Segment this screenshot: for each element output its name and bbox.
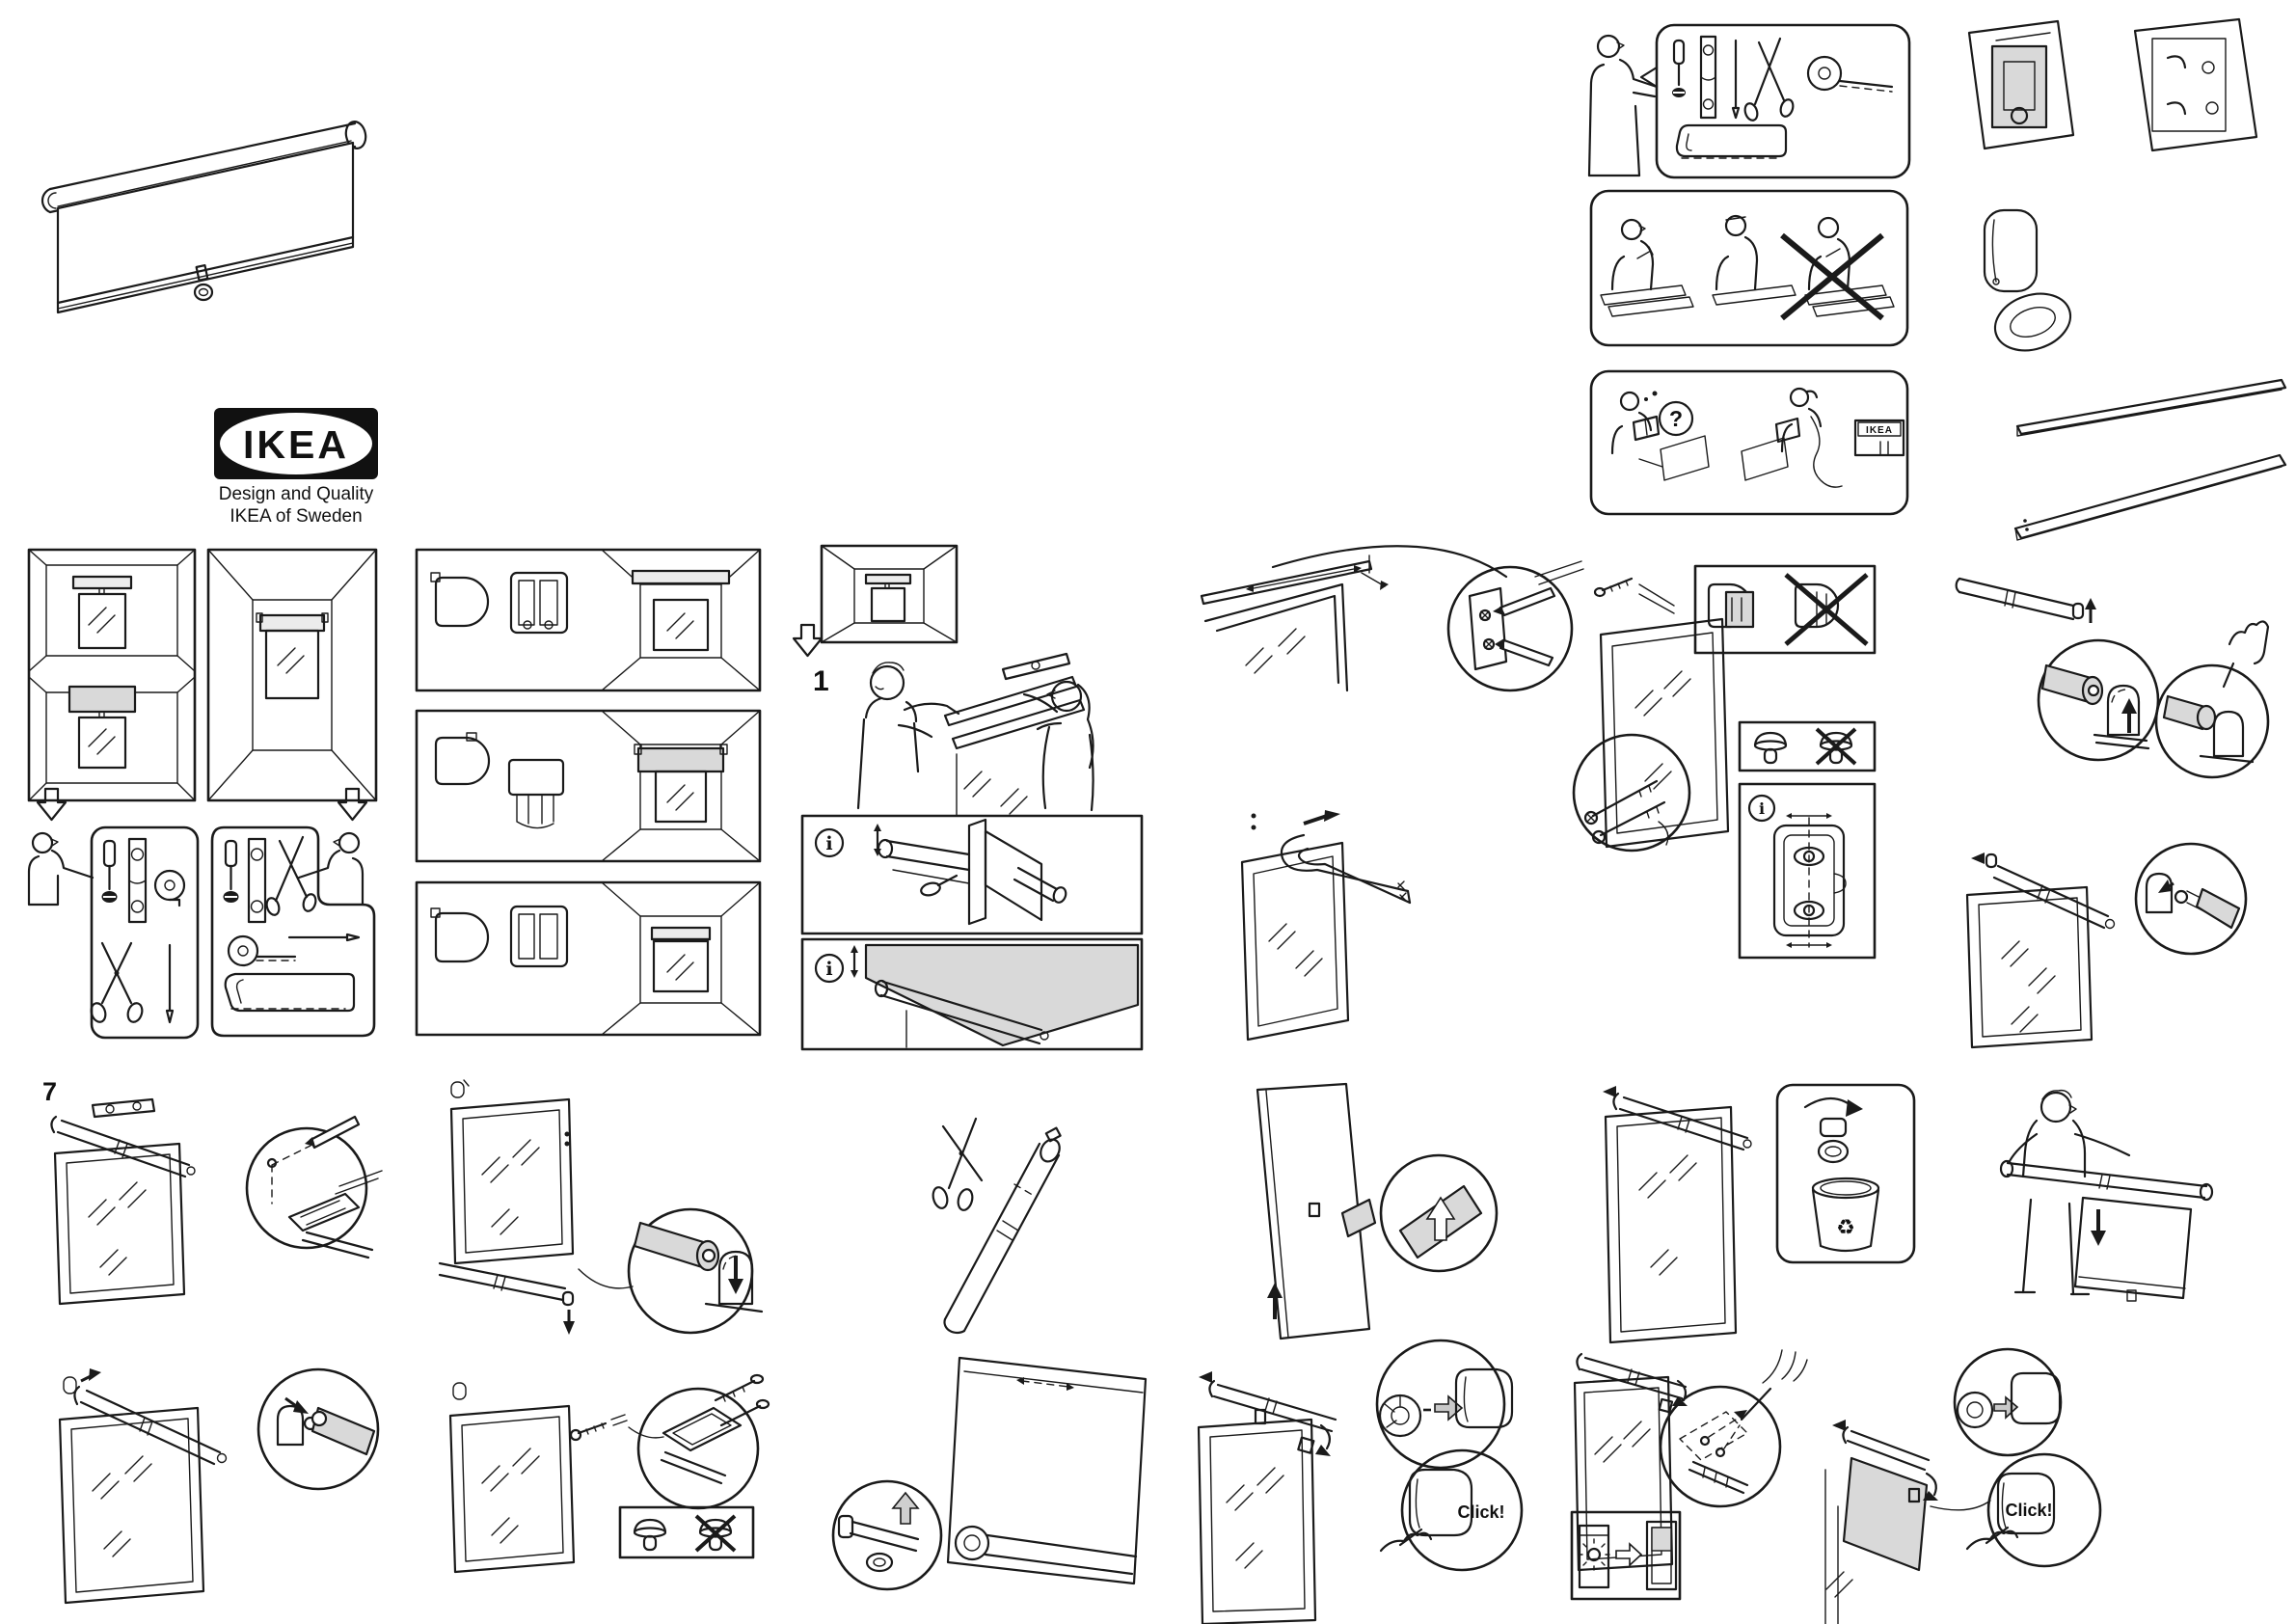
question-icon: ?	[1660, 402, 1692, 435]
svg-text:?: ?	[1669, 406, 1683, 431]
bracket-orientation-wrong	[1786, 575, 1867, 644]
click-label: Click!	[1457, 1502, 1504, 1522]
pencil-icon	[289, 934, 359, 940]
bracket-part-left	[1969, 21, 2073, 149]
tagline-line1: Design and Quality	[219, 484, 374, 504]
screwdriver-icon	[102, 841, 118, 903]
info-panel-ceiling-clearance: i	[802, 939, 1142, 1049]
cut-fabric-panel	[931, 1119, 1063, 1333]
man-unroll-panel	[2001, 1091, 2212, 1301]
trash-bin-icon: ♻	[1813, 1178, 1878, 1251]
rail-part-upper	[2017, 380, 2285, 436]
pull-handle-part	[1985, 210, 2078, 360]
screwdriver-icon	[1672, 41, 1686, 97]
tools-box-with-saw	[212, 827, 374, 1036]
scissors-icon	[89, 943, 144, 1024]
help-contact-box: ? IKEA	[1591, 371, 1907, 514]
ikea-logo: IKEA ®	[214, 408, 378, 479]
pencil-icon	[167, 945, 173, 1022]
sun-icon	[1579, 1539, 1609, 1570]
anchor-plug-rule-box	[620, 1507, 753, 1557]
down-arrow-icon	[794, 625, 822, 656]
down-arrow-icon	[38, 789, 66, 820]
side-cover-click-panel: Click!	[1199, 1340, 1522, 1624]
tagline: Design and Quality IKEA of Sweden	[219, 484, 374, 527]
step7-panel: 7	[42, 1077, 382, 1304]
anchor-plug-rule-box	[1740, 722, 1875, 771]
wall-plug-icon	[1755, 733, 1786, 763]
align-fabric-panel	[1257, 1084, 1497, 1339]
step1-label: 1	[813, 665, 829, 697]
registered-mark: ®	[364, 418, 373, 432]
step1-reference-window	[822, 546, 957, 642]
level-icon	[1701, 37, 1715, 118]
tape-measure-icon	[155, 871, 184, 906]
final-click-panel: Click!	[1825, 1349, 2100, 1624]
level-icon	[249, 839, 265, 922]
scissors-icon	[931, 1119, 982, 1211]
tape-apply-panel	[1242, 810, 1410, 1040]
ikea-store-icon: IKEA	[1855, 420, 1904, 455]
end-cap-icon	[64, 1377, 76, 1394]
hand-with-pencil-icon	[1734, 1350, 1807, 1420]
info-panel-wall-clearance: i	[802, 816, 1142, 934]
roller-insert-panel	[1957, 579, 2268, 777]
screwdriver-icon	[224, 841, 239, 903]
bracket-panel-wall-mount	[417, 550, 760, 690]
tools-needed-box	[1589, 25, 1909, 177]
wall-plug-icon	[635, 1520, 665, 1550]
step1-two-people-install	[858, 654, 1094, 816]
ikea-logo-text: IKEA	[243, 422, 349, 467]
scissors-icon	[265, 837, 318, 916]
product-roller-blind	[42, 120, 368, 312]
bracket-slot-info-panel: i	[1740, 784, 1875, 958]
instruction-sheet: IKEA ® Design and Quality IKEA of Sweden	[0, 0, 2296, 1624]
cap-onto-pin-panel	[60, 1368, 378, 1603]
wall-plug-crossed-icon	[696, 1516, 735, 1551]
sun-shade-box	[1572, 1512, 1680, 1599]
bracket-part-right	[2135, 19, 2256, 150]
mark-bracket-panel	[1572, 1350, 1807, 1599]
info-icon: i	[1749, 796, 1774, 821]
end-cap-icon	[451, 1080, 469, 1097]
remove-recycle-panel: ♻	[1603, 1085, 1914, 1342]
assembly-surface-warning-box	[1591, 191, 1907, 345]
svg-text:i: i	[825, 959, 832, 980]
end-cap-icon	[453, 1383, 466, 1399]
rail-part-lower	[2015, 455, 2285, 540]
pencil-icon	[1733, 41, 1739, 118]
bracket-panel-inside-mount	[417, 882, 760, 1035]
measure-rail-panel	[1202, 546, 1583, 690]
hacksaw-icon	[226, 974, 354, 1011]
bracket-panel-ceiling-mount	[417, 711, 760, 861]
tape-measure-icon	[1808, 57, 1892, 92]
recycle-icon: ♻	[1836, 1215, 1855, 1239]
screw-plug-panel	[450, 1375, 769, 1572]
instruction-drawing: IKEA ® Design and Quality IKEA of Sweden	[0, 0, 2296, 1624]
wall-plug-crossed-icon	[1817, 729, 1855, 764]
tools-box-simple	[29, 827, 198, 1038]
hang-roller-panel	[1967, 844, 2246, 1047]
info-icon: i	[816, 955, 843, 982]
svg-text:i: i	[825, 833, 832, 854]
tagline-line2: IKEA of Sweden	[230, 506, 362, 527]
svg-text:i: i	[1759, 799, 1765, 818]
step7-label: 7	[42, 1077, 57, 1106]
info-icon: i	[816, 829, 843, 856]
roll-direction-panel	[833, 1358, 1146, 1589]
scissors-icon	[1743, 39, 1796, 122]
screw-bracket-panel: i	[1574, 566, 1875, 958]
mount-options-inside-box	[208, 550, 376, 800]
down-arrow-icon	[338, 789, 366, 820]
level-icon	[129, 839, 146, 922]
mount-options-outside-box	[29, 550, 195, 800]
step8-panel	[440, 1080, 762, 1335]
hacksaw-icon	[1677, 125, 1786, 158]
click-label: Click!	[2005, 1501, 2052, 1520]
tape-measure-icon	[229, 936, 295, 965]
store-sign-label: IKEA	[1866, 425, 1893, 436]
